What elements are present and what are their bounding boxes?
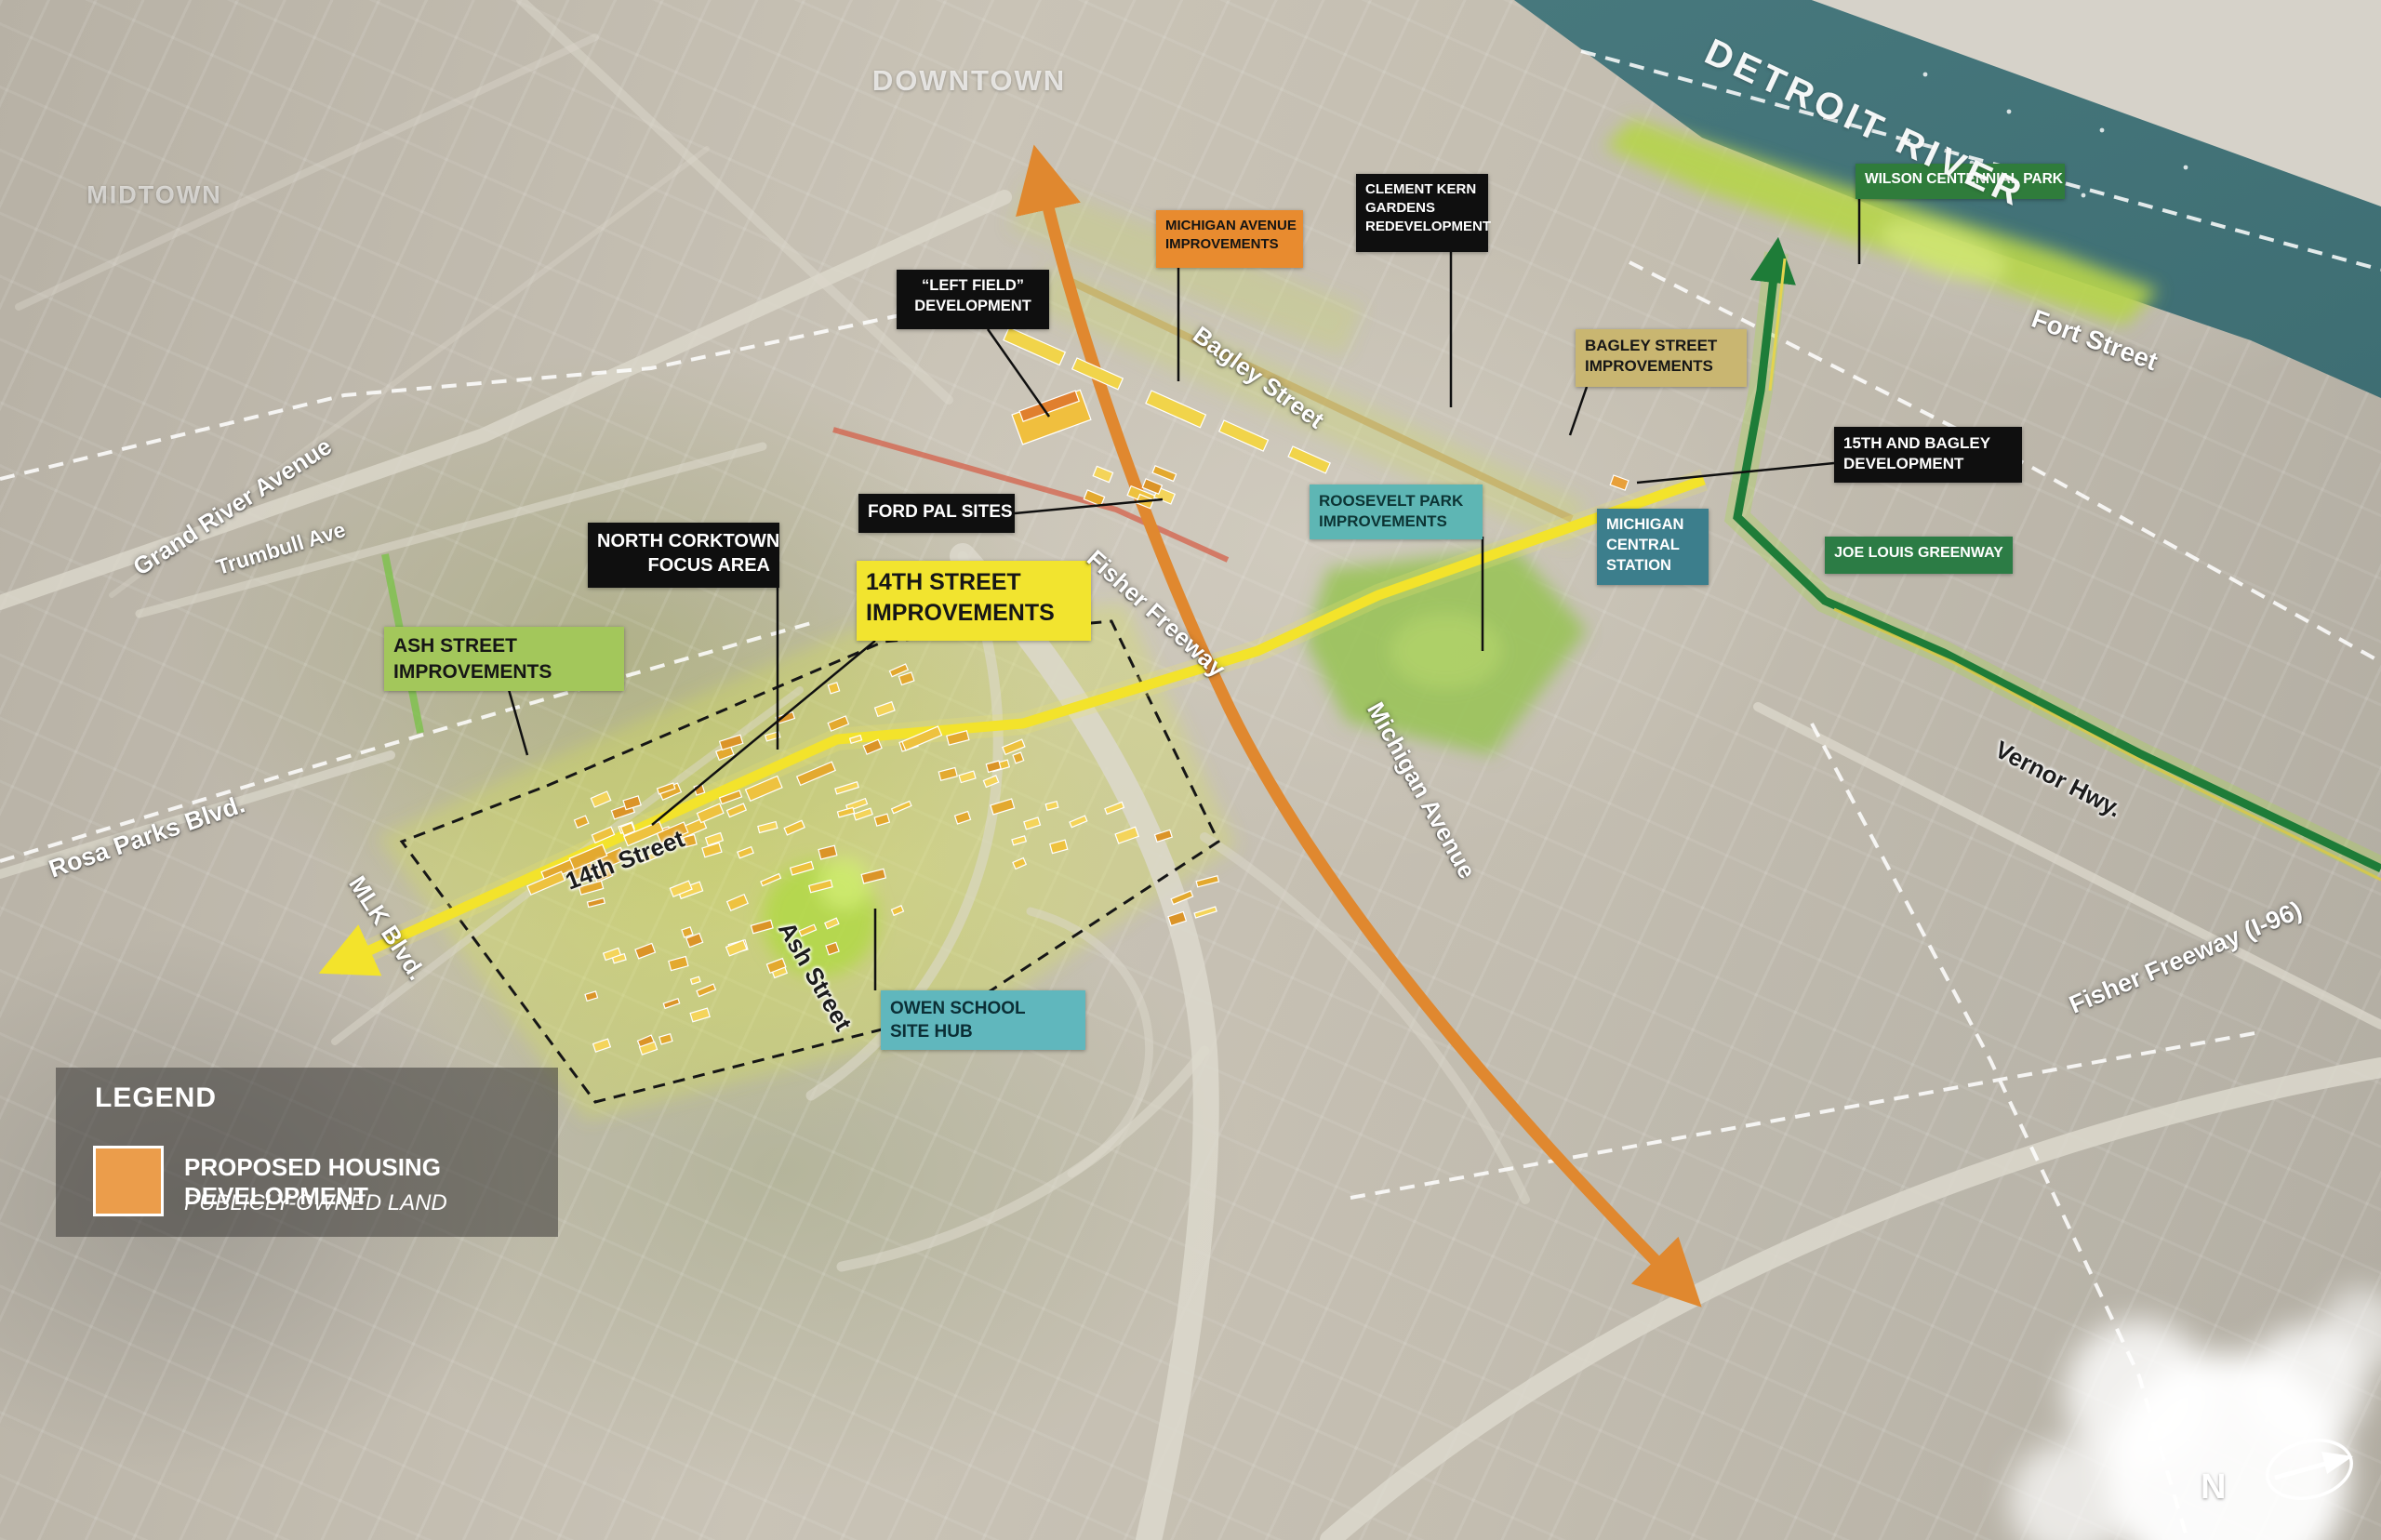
callout-line: ASH STREET bbox=[393, 633, 615, 659]
callout-line: MICHIGAN AVENUE bbox=[1165, 217, 1294, 235]
callout-line: DEVELOPMENT bbox=[1843, 454, 2013, 474]
callout-line: MICHIGAN bbox=[1606, 515, 1699, 536]
callout-clement-kern-gardens: CLEMENT KERNGARDENSREDEVELOPMENT bbox=[1356, 174, 1488, 252]
callout-left-field-development: “LEFT FIELD”DEVELOPMENT bbox=[897, 270, 1049, 329]
callout-north-corktown-focus-area: NORTH CORKTOWNFOCUS AREA bbox=[588, 523, 779, 588]
callout-line: DEVELOPMENT bbox=[906, 297, 1040, 317]
callout-line: IMPROVEMENTS bbox=[866, 598, 1082, 629]
callout-line: OWEN SCHOOL bbox=[890, 997, 1076, 1020]
area-label-downtown: DOWNTOWN bbox=[872, 64, 1066, 98]
pointer-bagley-street-improvements bbox=[1570, 387, 1587, 435]
callout-line: CENTRAL bbox=[1606, 536, 1699, 556]
clouds bbox=[2009, 1288, 2381, 1540]
callout-fifteenth-and-bagley-development: 15TH AND BAGLEYDEVELOPMENT bbox=[1834, 427, 2022, 483]
callout-line: IMPROVEMENTS bbox=[1585, 356, 1737, 377]
callout-ford-pal-sites: FORD PAL SITES bbox=[858, 494, 1015, 533]
proposed-housing-swatch bbox=[93, 1146, 164, 1216]
legend-title: LEGEND bbox=[95, 1082, 217, 1114]
callout-line: SITE HUB bbox=[890, 1020, 1076, 1043]
callout-owen-school-site-hub: OWEN SCHOOLSITE HUB bbox=[881, 990, 1085, 1050]
callout-line: “LEFT FIELD” bbox=[906, 276, 1040, 297]
callout-line: FOCUS AREA bbox=[597, 553, 770, 577]
area-label-midtown: MIDTOWN bbox=[86, 181, 221, 210]
callout-michigan-avenue-improvements: MICHIGAN AVENUEIMPROVEMENTS bbox=[1156, 210, 1303, 268]
callout-line: GARDENS bbox=[1365, 199, 1479, 218]
callout-line: 15TH AND BAGLEY bbox=[1843, 433, 2013, 454]
callout-ash-street-improvements: ASH STREETIMPROVEMENTS bbox=[384, 627, 624, 691]
callout-bagley-street-improvements: BAGLEY STREETIMPROVEMENTS bbox=[1576, 329, 1747, 387]
pointer-ash-street-improvements bbox=[508, 686, 527, 755]
callout-line: STATION bbox=[1606, 556, 1699, 577]
aerial-map: WILSON CENTENNIAL PARKCLEMENT KERNGARDEN… bbox=[0, 0, 2381, 1540]
callout-line: NORTH CORKTOWN bbox=[597, 529, 770, 553]
callout-line: REDEVELOPMENT bbox=[1365, 218, 1479, 236]
callout-fourteenth-street-improvements: 14TH STREETIMPROVEMENTS bbox=[857, 561, 1091, 641]
callout-roosevelt-park-improvements: ROOSEVELT PARKIMPROVEMENTS bbox=[1310, 485, 1483, 539]
callout-michigan-central-station: MICHIGANCENTRALSTATION bbox=[1597, 509, 1709, 585]
callout-line: JOE LOUIS GREENWAY bbox=[1834, 543, 2003, 563]
callout-line: FORD PAL SITES bbox=[868, 500, 1005, 524]
callout-line: ROOSEVELT PARK bbox=[1319, 491, 1473, 511]
callout-line: 14TH STREET bbox=[866, 567, 1082, 598]
callout-line: IMPROVEMENTS bbox=[393, 659, 615, 685]
callout-line: IMPROVEMENTS bbox=[1165, 235, 1294, 254]
legend-panel: LEGEND PROPOSED HOUSING DEVELOPMENT PUBL… bbox=[56, 1068, 558, 1237]
callout-line: CLEMENT KERN bbox=[1365, 180, 1479, 199]
callout-line: IMPROVEMENTS bbox=[1319, 511, 1473, 532]
callout-line: BAGLEY STREET bbox=[1585, 336, 1737, 356]
north-label: N bbox=[2201, 1467, 2226, 1507]
legend-item-subtitle: PUBLICLY-OWNED LAND bbox=[184, 1190, 447, 1216]
callout-joe-louis-greenway: JOE LOUIS GREENWAY bbox=[1825, 537, 2013, 574]
